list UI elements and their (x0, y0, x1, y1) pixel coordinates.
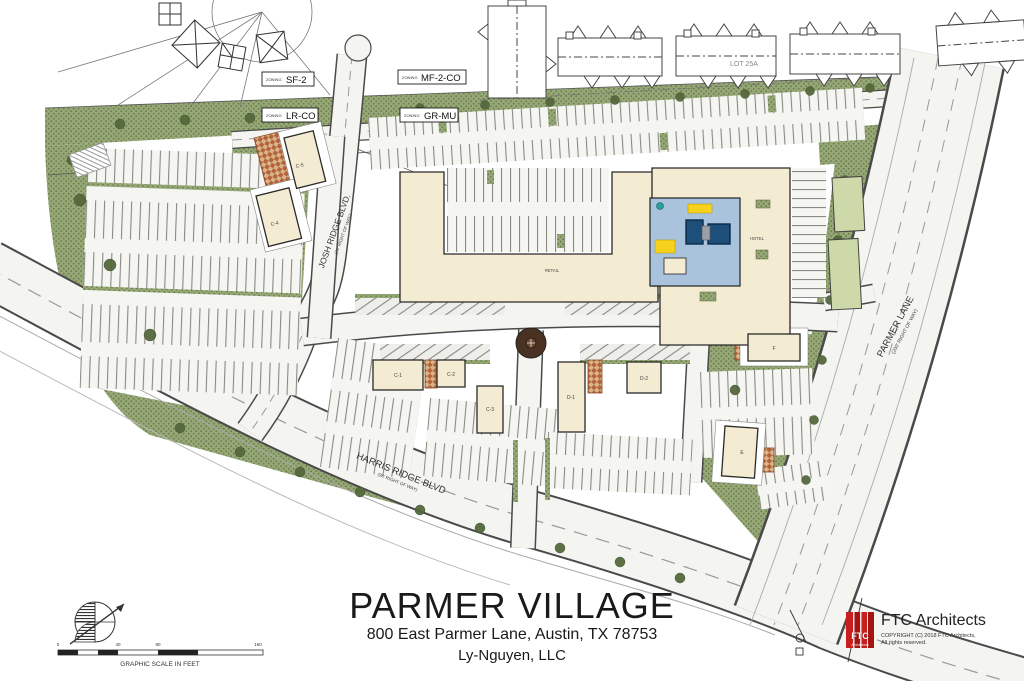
label-c3: C-3 (486, 407, 494, 413)
zoning-prefix: ZONING (402, 75, 418, 80)
zoning-prefix: ZONING (266, 113, 282, 118)
project-owner: Ly-Nguyen, LLC (232, 647, 792, 664)
label-f: F (772, 346, 775, 352)
zoning-label-sf2: ZONING SF-2 (262, 72, 314, 86)
project-title: PARMER VILLAGE (232, 588, 792, 624)
zoning-code: GR-MU (424, 111, 456, 122)
zoning-prefix: ZONING (266, 77, 282, 82)
title-block: PARMER VILLAGE 800 East Parmer Lane, Aus… (232, 588, 792, 664)
label-d2: D-2 (640, 376, 648, 382)
zoning-label-lrco: ZONING LR-CO (262, 108, 318, 122)
zoning-code: MF-2-CO (421, 73, 461, 84)
copyright-line-1: COPYRIGHT (C) 2018 FTC Architects, (881, 633, 986, 640)
pool (708, 224, 730, 244)
roundabout (516, 328, 546, 358)
logo-word: Architects (846, 642, 874, 647)
architect-name: FTC Architects (881, 612, 986, 630)
copyright-line-2: All rights reserved. (881, 640, 986, 647)
label-d1: D-1 (567, 395, 575, 401)
zoning-code: SF-2 (286, 75, 307, 86)
ftc-architects-logo: FTC Architects (846, 612, 874, 648)
zoning-code: LR-CO (286, 111, 316, 122)
pool (686, 220, 703, 244)
project-address: 800 East Parmer Lane, Austin, TX 78753 (232, 626, 792, 644)
scale-tick: 40 (115, 642, 121, 647)
site-plan-drawing: ZONING SF-2 ZONING MF-2-CO ZONING LR-CO … (0, 0, 1024, 681)
architect-block: FTC Architects FTC Architects COPYRIGHT … (846, 612, 986, 648)
zoning-label-mf2co: ZONING MF-2-CO (398, 70, 466, 84)
scale-tick: 0 (57, 642, 60, 647)
zoning-prefix: ZONING (404, 113, 420, 118)
label-c1: C-1 (394, 373, 402, 379)
logo-acronym: FTC (846, 632, 874, 641)
zoning-label-grmu: ZONING GR-MU (400, 108, 458, 122)
site-plan-sheet: ZONING SF-2 ZONING MF-2-CO ZONING LR-CO … (0, 0, 1024, 681)
north-arrow (70, 602, 124, 644)
label-retail: RETAIL (545, 268, 560, 273)
scale-label: GRAPHIC SCALE IN FEET (120, 661, 199, 668)
label-c2: C-2 (447, 372, 455, 378)
label-hotel: HOTEL (750, 236, 765, 241)
scale-tick: 80 (155, 642, 161, 647)
lot-25a-label: LOT 25A (730, 61, 758, 68)
